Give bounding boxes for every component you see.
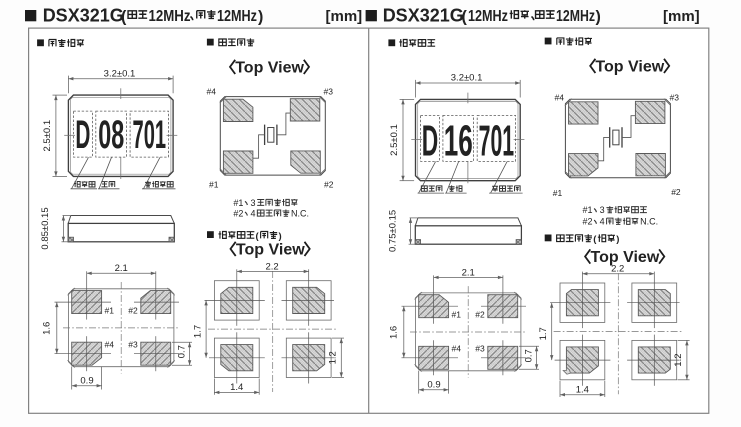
svg-text:Top View: Top View xyxy=(236,242,305,259)
svg-text:#1: #1 xyxy=(452,310,462,320)
svg-text:): ) xyxy=(258,8,263,25)
svg-text:3: 3 xyxy=(251,198,256,208)
svg-text:1.6: 1.6 xyxy=(388,326,399,339)
svg-text:0.9: 0.9 xyxy=(427,380,440,391)
svg-text:D: D xyxy=(75,113,90,157)
svg-text:[mm]: [mm] xyxy=(663,8,700,25)
svg-text:): ) xyxy=(616,234,619,245)
svg-text:12MHz: 12MHz xyxy=(149,8,191,25)
svg-text:#1: #1 xyxy=(105,305,115,315)
svg-text:4: 4 xyxy=(600,217,605,227)
svg-text:#2: #2 xyxy=(324,179,334,189)
svg-text:0.85±0.15: 0.85±0.15 xyxy=(40,207,51,249)
svg-text:#4: #4 xyxy=(207,86,217,96)
svg-text:08: 08 xyxy=(98,113,124,157)
svg-text:Top View: Top View xyxy=(591,249,660,266)
svg-text:#3: #3 xyxy=(475,344,485,354)
svg-text:1.7: 1.7 xyxy=(192,325,203,338)
svg-text:12MHz: 12MHz xyxy=(556,8,595,25)
svg-text:12MHz: 12MHz xyxy=(217,8,257,25)
svg-text:#2: #2 xyxy=(233,208,243,218)
svg-text:#1: #1 xyxy=(209,179,219,189)
svg-text:#4: #4 xyxy=(105,339,115,349)
svg-text:(: ( xyxy=(462,8,468,25)
svg-text:Top View: Top View xyxy=(595,59,664,76)
svg-text:3.2±0.1: 3.2±0.1 xyxy=(104,68,136,79)
svg-text:D: D xyxy=(422,117,439,166)
svg-text:(: ( xyxy=(121,8,127,25)
svg-text:12MHz: 12MHz xyxy=(468,8,508,25)
svg-text:#4: #4 xyxy=(452,344,462,354)
svg-text:#2: #2 xyxy=(671,187,681,197)
svg-text:N.C.: N.C. xyxy=(640,217,658,227)
svg-text:1.7: 1.7 xyxy=(538,327,549,340)
svg-text:2.1: 2.1 xyxy=(115,263,128,274)
svg-text:#1: #1 xyxy=(583,205,593,215)
svg-text:DSX321G: DSX321G xyxy=(43,5,124,25)
svg-text:4: 4 xyxy=(251,208,256,218)
svg-text:Top View: Top View xyxy=(235,60,304,77)
svg-text:#2: #2 xyxy=(583,217,593,227)
svg-text:1.6: 1.6 xyxy=(41,322,52,335)
svg-text:2.1: 2.1 xyxy=(462,267,475,278)
svg-text:3: 3 xyxy=(600,205,605,215)
svg-text:0.75±0.15: 0.75±0.15 xyxy=(387,210,398,252)
svg-text:701: 701 xyxy=(479,117,515,166)
svg-text:0.7: 0.7 xyxy=(523,349,534,362)
svg-text:1.2: 1.2 xyxy=(673,353,684,366)
svg-text:0.9: 0.9 xyxy=(80,375,93,386)
svg-text:3.2±0.1: 3.2±0.1 xyxy=(451,73,483,84)
svg-text:2.5±0.1: 2.5±0.1 xyxy=(389,124,400,156)
svg-text:#4: #4 xyxy=(555,93,565,103)
svg-text:0.7: 0.7 xyxy=(176,345,187,358)
svg-text:1.2: 1.2 xyxy=(327,351,338,364)
svg-text:N.C.: N.C. xyxy=(291,208,309,218)
svg-text:16: 16 xyxy=(444,117,473,166)
svg-text:DSX321G: DSX321G xyxy=(383,5,464,25)
svg-text:#3: #3 xyxy=(324,86,334,96)
svg-text:1.4: 1.4 xyxy=(230,382,243,393)
svg-text:2.2: 2.2 xyxy=(265,261,278,272)
svg-text:#1: #1 xyxy=(553,188,563,198)
svg-text:2.5±0.1: 2.5±0.1 xyxy=(42,120,53,152)
svg-text:#2: #2 xyxy=(475,310,485,320)
svg-text:701: 701 xyxy=(133,113,167,157)
svg-text:1.4: 1.4 xyxy=(576,385,589,396)
svg-text:#2: #2 xyxy=(128,305,138,315)
svg-text:#1: #1 xyxy=(233,198,243,208)
svg-text:2.2: 2.2 xyxy=(611,264,624,275)
svg-text:): ) xyxy=(596,8,601,25)
svg-text:): ) xyxy=(279,231,282,242)
svg-text:#3: #3 xyxy=(670,93,680,103)
svg-text:[mm]: [mm] xyxy=(326,8,363,25)
svg-text:#3: #3 xyxy=(128,339,138,349)
